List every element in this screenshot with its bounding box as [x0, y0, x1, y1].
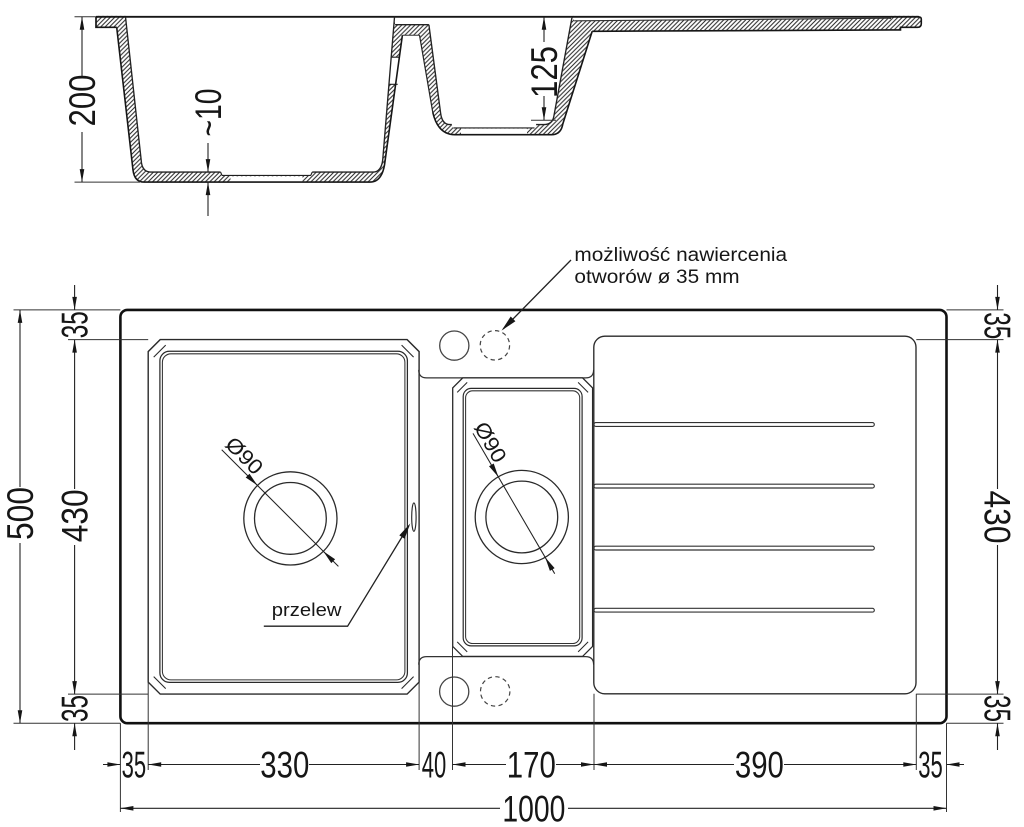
svg-text:Ø90: Ø90 — [469, 418, 510, 467]
svg-text:500: 500 — [0, 487, 41, 540]
svg-text:125: 125 — [524, 46, 565, 98]
svg-text:1000: 1000 — [502, 788, 565, 827]
svg-text:35: 35 — [918, 745, 943, 786]
svg-text:35: 35 — [55, 695, 96, 722]
svg-text:40: 40 — [422, 745, 447, 786]
svg-text:170: 170 — [507, 745, 556, 786]
svg-text:przelew: przelew — [272, 599, 342, 620]
svg-text:35: 35 — [122, 745, 147, 786]
svg-text:~10: ~10 — [188, 89, 229, 137]
svg-text:35: 35 — [977, 312, 1018, 339]
svg-text:330: 330 — [260, 745, 309, 786]
svg-text:430: 430 — [55, 489, 96, 542]
svg-text:390: 390 — [735, 745, 784, 786]
svg-text:430: 430 — [977, 491, 1018, 544]
svg-text:200: 200 — [62, 75, 103, 127]
svg-text:35: 35 — [55, 311, 96, 338]
svg-text:otworów ø 35 mm: otworów ø 35 mm — [574, 266, 739, 288]
svg-text:możliwość nawiercenia: możliwość nawiercenia — [574, 244, 787, 266]
svg-text:35: 35 — [977, 695, 1018, 722]
